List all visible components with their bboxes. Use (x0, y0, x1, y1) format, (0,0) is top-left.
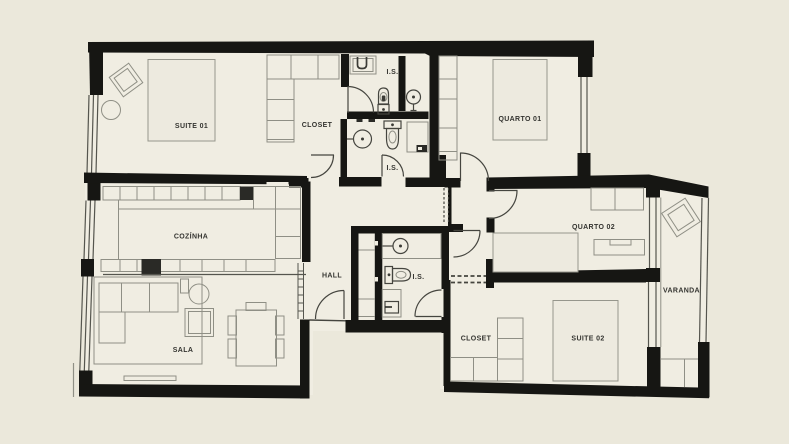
svg-text:SUITE 02: SUITE 02 (571, 336, 604, 343)
svg-text:SUITE 01: SUITE 01 (175, 123, 208, 130)
svg-text:I.S.: I.S. (413, 274, 425, 281)
svg-text:QUARTO 02: QUARTO 02 (572, 224, 615, 231)
svg-text:CLOSET: CLOSET (461, 336, 492, 343)
svg-text:COZÍNHA: COZÍNHA (174, 232, 208, 241)
svg-text:CLOSET: CLOSET (302, 122, 333, 129)
svg-text:I.S.: I.S. (387, 69, 399, 76)
svg-text:QUARTO 01: QUARTO 01 (498, 116, 541, 123)
svg-text:SALA: SALA (173, 347, 193, 354)
svg-text:VARANDA: VARANDA (663, 288, 700, 295)
svg-text:HALL: HALL (322, 273, 342, 280)
svg-text:I.S.: I.S. (387, 165, 399, 172)
